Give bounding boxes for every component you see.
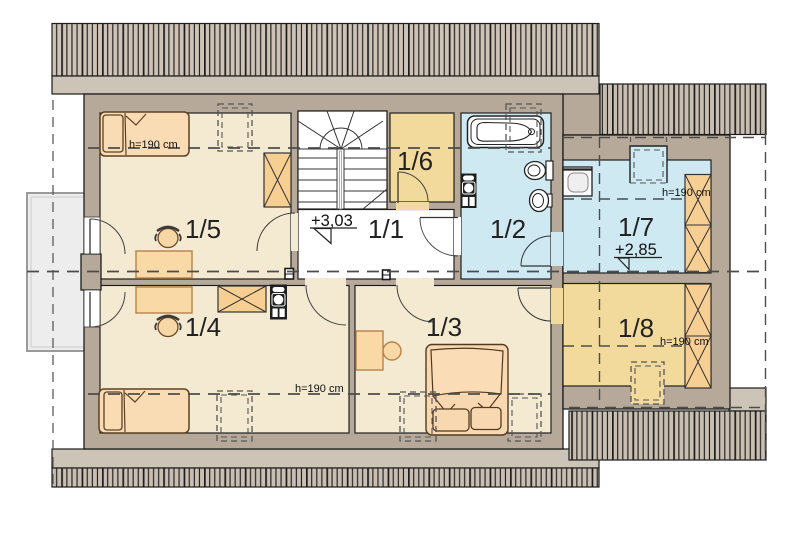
svg-text:+3,03: +3,03 <box>311 212 353 230</box>
svg-text:1/3: 1/3 <box>426 312 462 342</box>
svg-text:+2,85: +2,85 <box>615 241 657 259</box>
svg-text:h=190 cm: h=190 cm <box>295 383 344 395</box>
svg-text:1/2: 1/2 <box>490 214 526 244</box>
svg-text:1/1: 1/1 <box>368 214 404 244</box>
svg-text:1/7: 1/7 <box>618 212 654 242</box>
svg-text:1/4: 1/4 <box>185 312 221 342</box>
svg-text:1/5: 1/5 <box>185 214 221 244</box>
svg-text:1/8: 1/8 <box>618 313 654 343</box>
svg-text:h=190 cm: h=190 cm <box>660 336 709 348</box>
svg-text:h=190 cm: h=190 cm <box>129 139 178 151</box>
svg-text:1/6: 1/6 <box>397 146 433 176</box>
svg-text:h=190 cm: h=190 cm <box>662 187 711 199</box>
